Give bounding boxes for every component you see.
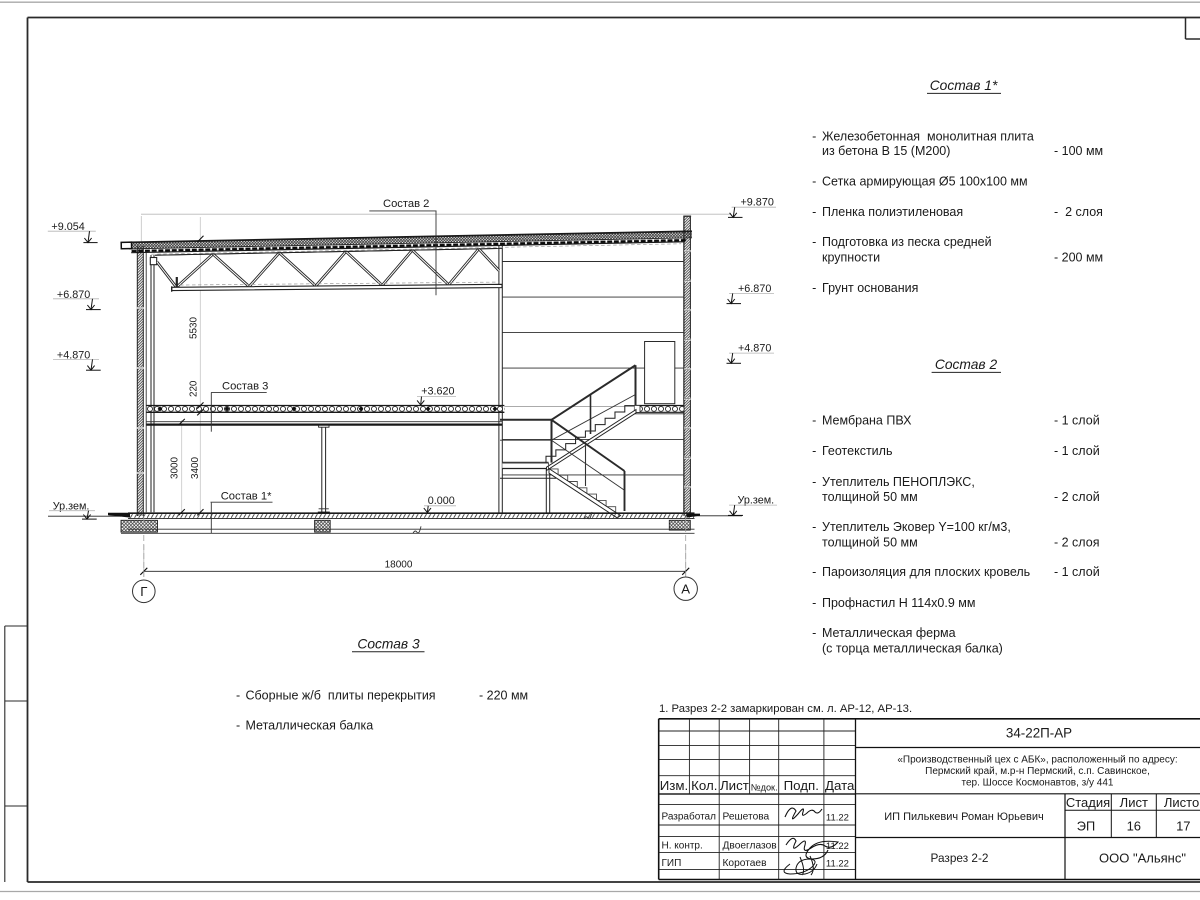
svg-text:Подготовка из песка средней: Подготовка из песка средней: [822, 235, 992, 249]
svg-text:0.000: 0.000: [428, 495, 455, 507]
svg-text:-: -: [812, 413, 816, 427]
svg-text:Г: Г: [140, 584, 147, 599]
svg-text:Н. контр.: Н. контр.: [662, 841, 703, 852]
svg-text:Разрез 2-2: Разрез 2-2: [931, 851, 989, 865]
svg-text:Лист: Лист: [720, 778, 749, 793]
svg-text:Лист: Лист: [1120, 795, 1148, 810]
svg-text:-: -: [812, 626, 816, 640]
svg-text:-: -: [812, 444, 816, 458]
svg-text:-: -: [812, 565, 816, 579]
svg-text:(с торца металлическая балка): (с торца металлическая балка): [822, 641, 1003, 655]
svg-text:11.22: 11.22: [826, 859, 849, 870]
svg-text:Состав 3: Состав 3: [222, 381, 268, 393]
svg-text:18000: 18000: [385, 559, 413, 570]
svg-text:толщиной 50 мм: толщиной 50 мм: [822, 535, 918, 549]
svg-text:Сборные ж/б плиты перекрытия: Сборные ж/б плиты перекрытия: [246, 688, 436, 702]
svg-text:+9.870: +9.870: [741, 196, 774, 208]
svg-text:Состав 1*: Состав 1*: [221, 491, 272, 503]
svg-text:- 220 мм: - 220 мм: [479, 688, 528, 702]
svg-text:ООО "Альянс": ООО "Альянс": [1099, 851, 1186, 866]
svg-text:- 200 мм: - 200 мм: [1054, 250, 1103, 264]
svg-text:Коротаев: Коротаев: [723, 858, 767, 869]
svg-text:Сетка армирующая Ø5 100х100 мм: Сетка армирующая Ø5 100х100 мм: [822, 174, 1028, 188]
svg-text:из бетона В 15 (М200): из бетона В 15 (М200): [822, 144, 950, 158]
svg-text:- 1 слой: - 1 слой: [1054, 565, 1100, 579]
svg-text:Двоеглазов: Двоеглазов: [723, 841, 777, 852]
svg-text:тер. Шоссе Космонавтов, з/у 44: тер. Шоссе Космонавтов, з/у 441: [962, 778, 1114, 789]
svg-text:5530: 5530: [189, 317, 200, 339]
svg-text:ЭП: ЭП: [1077, 818, 1095, 833]
svg-text:Металлическая балка: Металлическая балка: [246, 719, 374, 733]
svg-text:-: -: [812, 174, 816, 188]
svg-text:- 2 слоя: - 2 слоя: [1054, 205, 1103, 219]
svg-text:3400: 3400: [190, 457, 201, 479]
svg-text:Дата: Дата: [825, 778, 855, 793]
svg-text:-: -: [812, 281, 816, 295]
svg-text:-: -: [812, 130, 816, 144]
svg-text:- 2 слоя: - 2 слоя: [1054, 535, 1099, 549]
svg-text:Состав 2: Состав 2: [935, 357, 998, 372]
svg-text:Железобетонная монолитная пли: Железобетонная монолитная плита: [822, 130, 1034, 144]
svg-text:Пароизоляция для плоских крове: Пароизоляция для плоских кровель: [822, 565, 1030, 579]
svg-text:220: 220: [189, 380, 200, 397]
svg-text:№док.: №док.: [751, 783, 778, 793]
svg-text:-: -: [236, 688, 240, 702]
svg-text:ИП Пилькевич Роман Юрьевич: ИП Пилькевич Роман Юрьевич: [884, 811, 1043, 823]
svg-text:Утеплитель ПЕНОПЛЭКС,: Утеплитель ПЕНОПЛЭКС,: [822, 475, 975, 489]
svg-text:А: А: [681, 582, 690, 597]
svg-text:1. Разрез 2-2 замаркирован см.: 1. Разрез 2-2 замаркирован см. л. АР-12,…: [659, 703, 912, 715]
svg-text:16: 16: [1127, 818, 1141, 833]
svg-text:«Производственный цех с АБК»,: «Производственный цех с АБК», расположен…: [897, 755, 1177, 766]
svg-text:+3.620: +3.620: [421, 386, 454, 398]
svg-text:Пермский край, м.р-н Пермский,: Пермский край, м.р-н Пермский, с.п. Сави…: [925, 766, 1150, 777]
svg-text:Кол.: Кол.: [691, 778, 717, 793]
svg-text:Ур.зем.: Ур.зем.: [738, 494, 775, 506]
svg-text:Металлическая ферма: Металлическая ферма: [822, 626, 956, 640]
svg-text:-: -: [236, 719, 240, 733]
svg-text:крупности: крупности: [822, 250, 880, 264]
svg-text:Состав 3: Состав 3: [357, 636, 420, 651]
svg-text:толщиной 50 мм: толщиной 50 мм: [822, 490, 918, 504]
svg-text:- 1 слой: - 1 слой: [1054, 413, 1100, 427]
svg-text:Листов: Листов: [1164, 795, 1200, 810]
svg-text:-: -: [812, 475, 816, 489]
svg-text:-: -: [812, 205, 816, 219]
svg-text:Инв. № подл.: Инв. № подл.: [0, 818, 1, 868]
svg-text:Геотекстиль: Геотекстиль: [822, 444, 892, 458]
svg-text:- 100 мм: - 100 мм: [1054, 144, 1103, 158]
svg-text:3000: 3000: [170, 457, 181, 479]
svg-text:Изм.: Изм.: [660, 778, 689, 793]
svg-text:-: -: [812, 235, 816, 249]
svg-text:Мембрана ПВХ: Мембрана ПВХ: [822, 413, 912, 427]
svg-text:Разработал: Разработал: [662, 811, 717, 823]
svg-text:Состав 2: Состав 2: [383, 198, 429, 210]
svg-text:-: -: [812, 596, 816, 610]
svg-text:- 2 слой: - 2 слой: [1054, 490, 1100, 504]
svg-text:Утеплитель Эковер Y=100 кг/м3,: Утеплитель Эковер Y=100 кг/м3,: [822, 520, 1011, 534]
svg-text:17: 17: [1176, 818, 1190, 833]
svg-text:Пленка полиэтиленовая: Пленка полиэтиленовая: [822, 205, 963, 219]
svg-text:Подп. и дата: Подп. и дата: [0, 729, 1, 777]
svg-text:-: -: [812, 520, 816, 534]
svg-text:Решетова: Решетова: [723, 812, 770, 823]
svg-text:Стадия: Стадия: [1066, 795, 1110, 810]
svg-text:34-22П-АР: 34-22П-АР: [1006, 725, 1072, 740]
svg-text:11.22: 11.22: [826, 812, 849, 823]
svg-text:- 1 слой: - 1 слой: [1054, 444, 1100, 458]
svg-text:Взам. инв. №: Взам. инв. №: [0, 638, 1, 688]
svg-text:Грунт основания: Грунт основания: [822, 281, 918, 295]
svg-text:Профнастил Н 114х0.9 мм: Профнастил Н 114х0.9 мм: [822, 596, 975, 610]
svg-text:Состав 1*: Состав 1*: [930, 78, 998, 93]
svg-text:Подп.: Подп.: [784, 778, 819, 793]
svg-text:ГИП: ГИП: [662, 858, 682, 869]
